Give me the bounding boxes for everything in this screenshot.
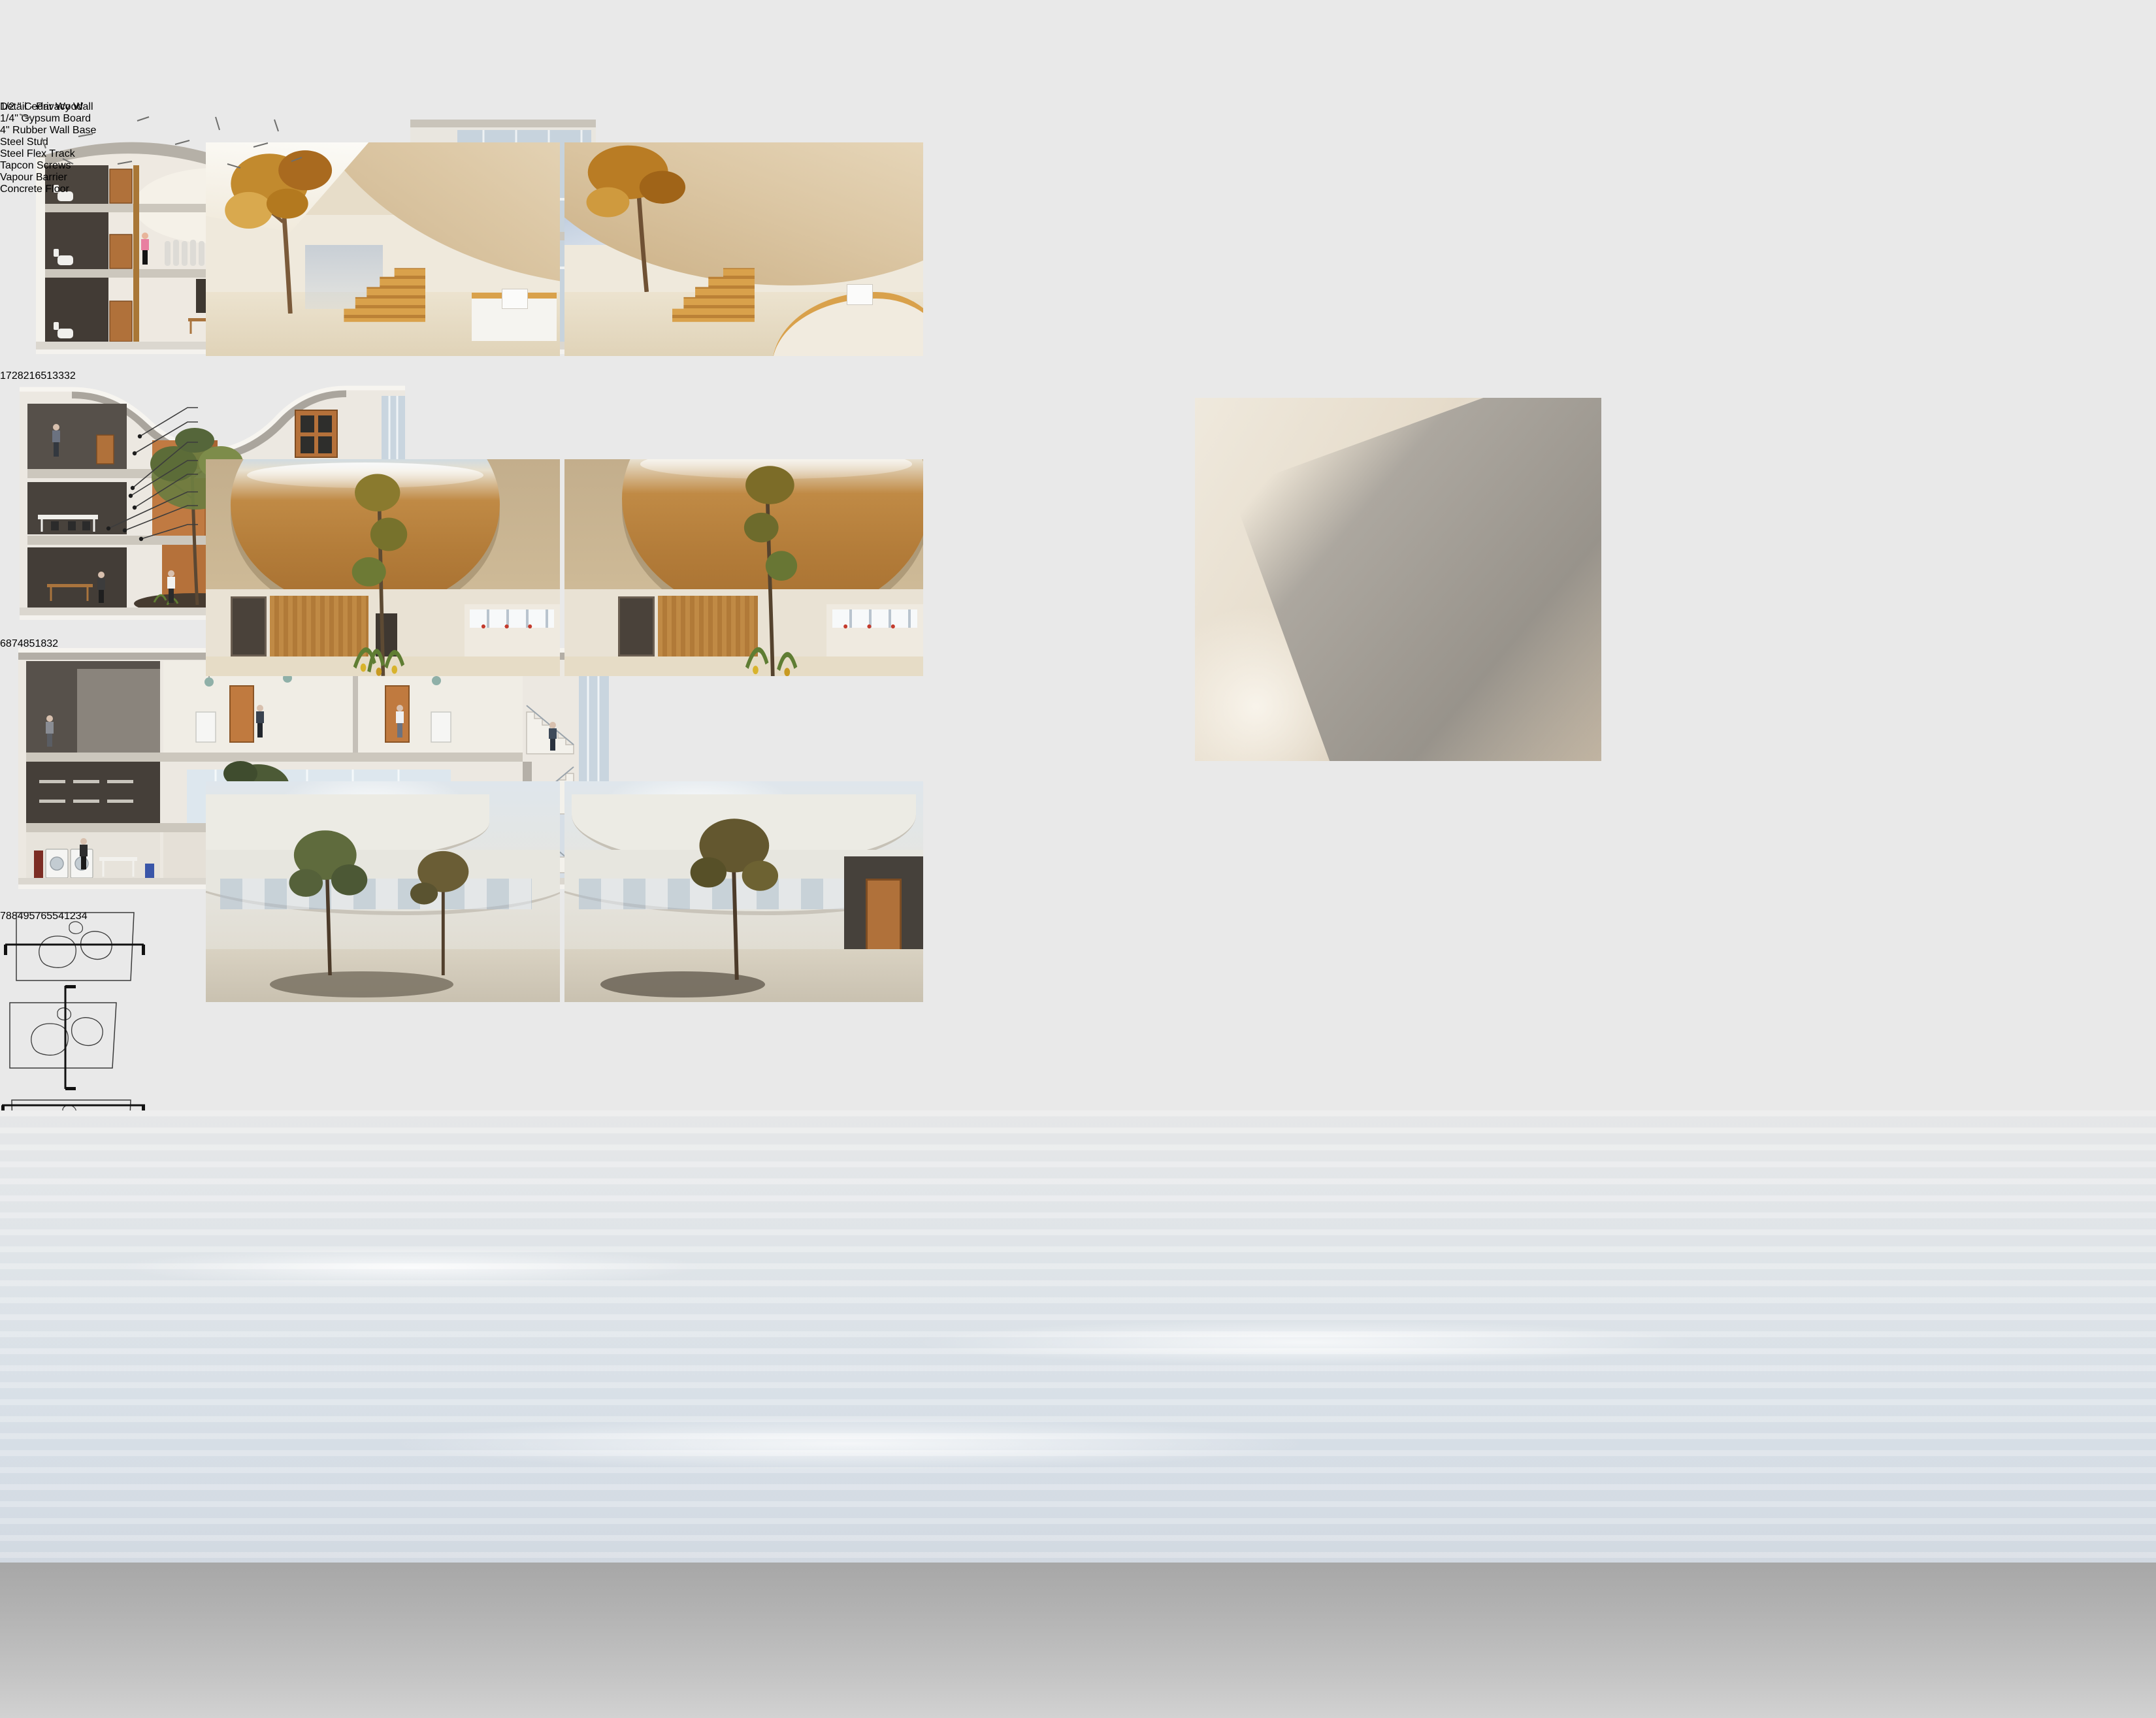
render-courtyard-1 [206, 781, 560, 1002]
red-desk-lamps [475, 620, 546, 633]
callout-connector-lines [0, 0, 196, 98]
ground-background [0, 1563, 2156, 1718]
presentation-board: 1/2 " Cedar Wood1/4" Gypsum Board4" Rubb… [0, 0, 2156, 1718]
desk-monitor [847, 284, 873, 304]
render-oculus-tree-2 [564, 459, 923, 676]
wood-door [866, 879, 902, 953]
render-courtyard-2 [564, 781, 923, 1002]
detail-drawing-box: 1/2 " Cedar Wood1/4" Gypsum Board4" Rubb… [0, 101, 96, 195]
courtyard-tree [390, 839, 497, 976]
courtyard-tree [672, 812, 802, 980]
atrium-tree [701, 464, 845, 676]
dark-door [618, 596, 654, 656]
detail-title: Detail - Privacy Wall [0, 101, 93, 113]
desk-monitor [502, 289, 528, 309]
dark-door [231, 596, 267, 656]
courtyard-tree [270, 821, 390, 976]
atrium-tree [312, 468, 454, 676]
render-privacy-wall-axon [1195, 398, 1601, 761]
sky-background [0, 1110, 2156, 1563]
keyplan-section-1 [0, 907, 150, 984]
autumn-tree [568, 142, 711, 292]
keyplan-section-2 [0, 984, 124, 1092]
leader-lines [0, 101, 312, 599]
cedar-clad-wall [1195, 398, 1382, 674]
red-desk-lamps [837, 620, 909, 633]
render-atrium-stair-2 [564, 142, 923, 356]
